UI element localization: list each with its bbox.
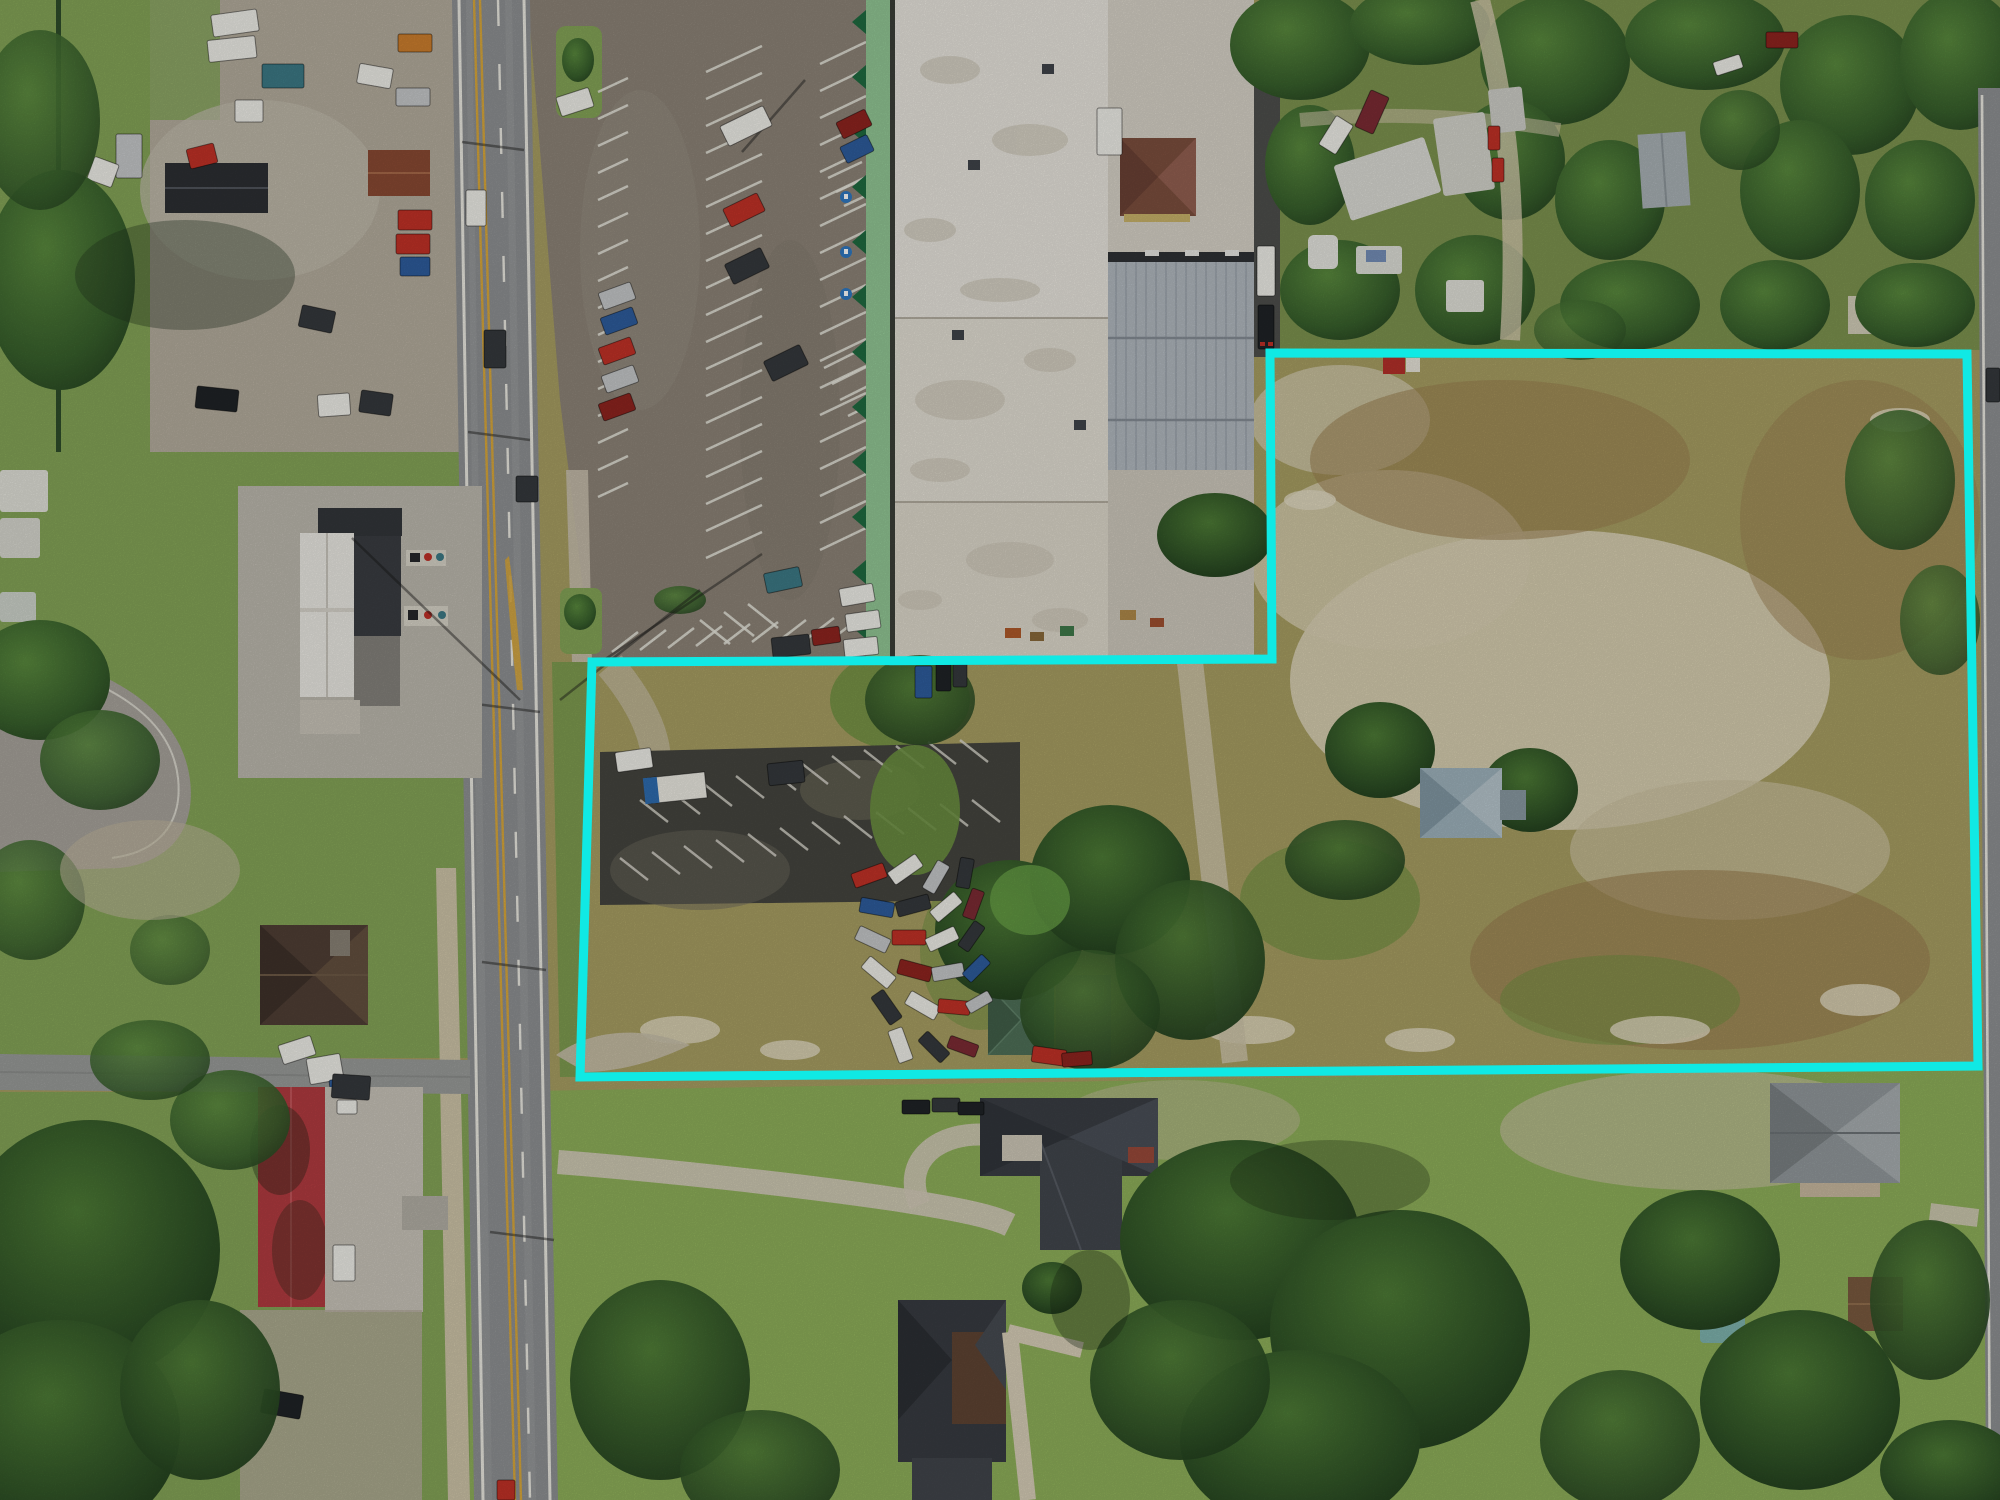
aerial-scene — [0, 0, 2000, 1500]
aerial-photo — [0, 0, 2000, 1500]
photo-grain — [0, 0, 2000, 1500]
